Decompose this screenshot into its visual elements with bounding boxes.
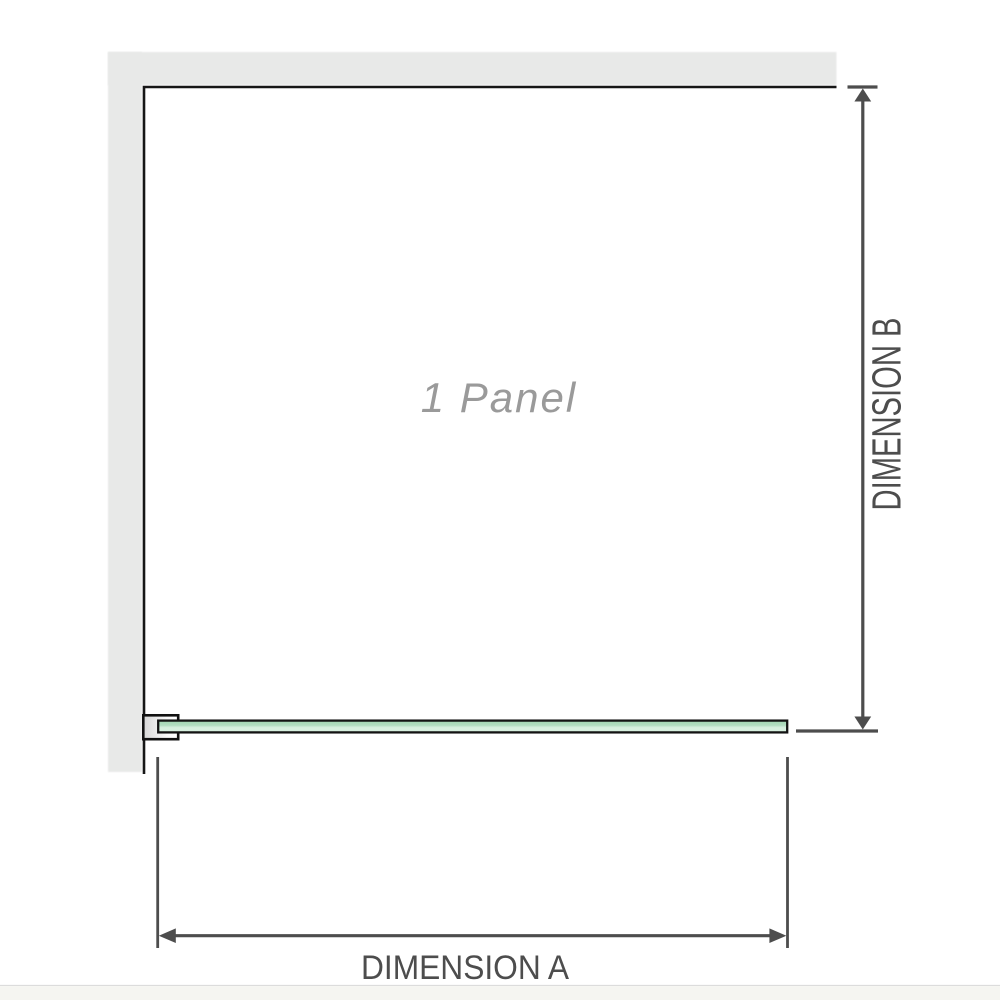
svg-text:1 Panel: 1 Panel — [421, 374, 577, 421]
svg-text:DIMENSION A: DIMENSION A — [361, 949, 569, 987]
svg-text:DIMENSION B: DIMENSION B — [864, 318, 910, 511]
